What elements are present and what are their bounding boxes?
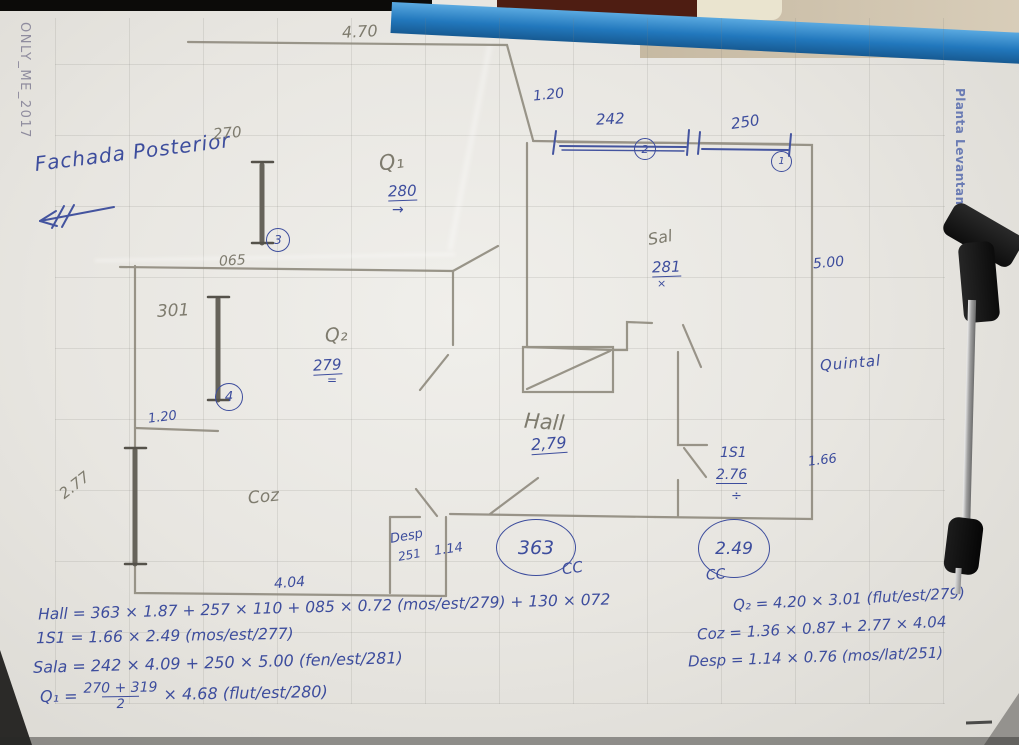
height-1s1-276: 2.76	[716, 468, 747, 484]
dim-404: 4.04	[274, 575, 306, 591]
formula-q1-rest: × 4.68 (flut/est/280)	[163, 682, 328, 704]
room-label-hall: Hall	[523, 411, 565, 435]
circled-value-363: 363	[496, 519, 576, 576]
room-label-coz: Coz	[247, 487, 280, 507]
room-label-1s1: 1S1	[720, 446, 747, 460]
dim-065: 065	[219, 253, 246, 268]
window-tag-4-number: 4	[225, 390, 233, 405]
room-label-sala: Sal	[647, 228, 674, 248]
watermark-only-me: ONLY_ME_2017	[18, 22, 31, 139]
formula-q1-numerator: 270 + 319	[83, 680, 157, 696]
window-tag-4: 4	[215, 383, 243, 411]
dim-120-left: 1.20	[147, 409, 177, 425]
formula-q1-fraction: 270 + 3192	[83, 680, 158, 711]
dim-500: 5.00	[812, 255, 844, 272]
dim-114: 1.14	[433, 541, 463, 558]
room-label-q1: Q₁	[378, 150, 406, 174]
height-q1-280: 280	[388, 184, 417, 202]
window-tag-1: 1	[771, 151, 792, 172]
dim-301: 301	[157, 302, 190, 321]
clip-black-tip	[943, 516, 985, 576]
circled-value-249: 2.49	[698, 519, 770, 578]
height-sala-281: 281	[652, 260, 681, 278]
formula-q1-denominator: 2	[102, 696, 139, 712]
formula-q1-lead: Q₁ =	[40, 686, 78, 706]
photo-bottom-shadow	[0, 737, 1019, 745]
height-desp-251: 251	[397, 547, 422, 563]
window-tag-1-number: 1	[778, 156, 784, 167]
clip-metal-wire	[962, 300, 976, 538]
photo-corner-dark	[0, 650, 32, 745]
floor-plan-photo: ONLY_ME_2017 Planta Levantamento Fachada…	[0, 0, 1019, 745]
height-hall-279: 2,79	[530, 435, 567, 455]
arrow-under-280: →	[392, 203, 404, 217]
window-tag-3-number: 3	[274, 233, 282, 247]
clip-handle-lower	[958, 241, 1001, 324]
dim-270: 270	[212, 125, 242, 142]
mark-under-276: ÷	[731, 490, 742, 503]
pen-dash-mark	[966, 721, 992, 725]
mark-under-281: ×	[657, 278, 666, 289]
formula-q1: Q₁ =270 + 3192× 4.68 (flut/est/280)	[40, 677, 328, 712]
window-tag-2-number: 2	[642, 143, 649, 156]
dim-242: 242	[596, 111, 625, 127]
value-249: 2.49	[715, 539, 753, 559]
dim-470: 4.70	[342, 23, 378, 41]
room-label-q2: Q₂	[324, 325, 348, 346]
background-dark-edge	[0, 0, 432, 11]
dim-250: 250	[730, 113, 760, 132]
dim-120-top: 1.20	[532, 86, 564, 103]
window-tag-3: 3	[266, 228, 290, 252]
dim-166: 1.66	[807, 452, 837, 468]
window-tag-2: 2	[634, 138, 656, 160]
value-363: 363	[518, 537, 554, 559]
mark-under-279: =	[327, 374, 337, 386]
